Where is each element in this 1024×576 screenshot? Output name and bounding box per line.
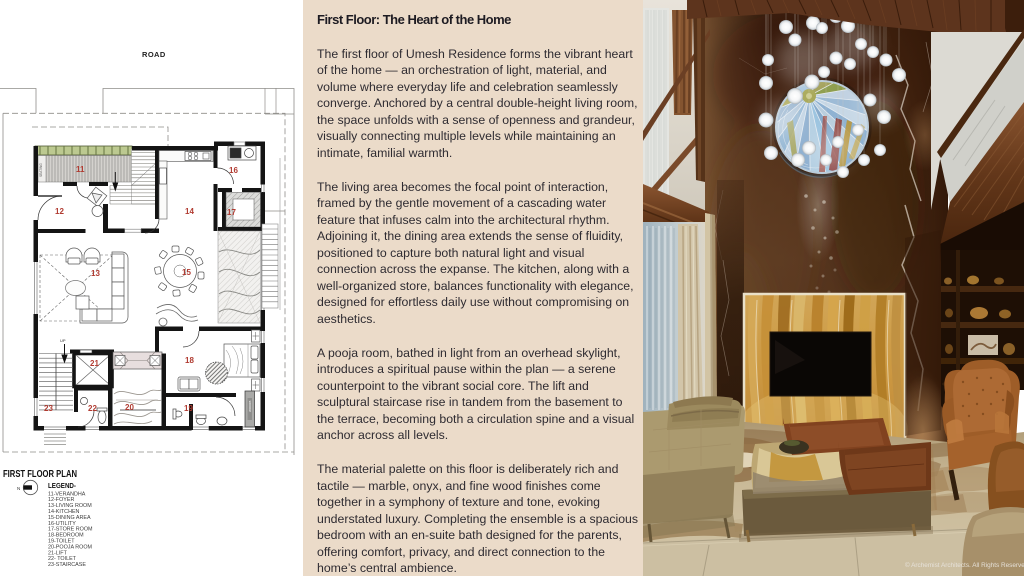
svg-text:17: 17 [227, 208, 236, 217]
svg-text:20: 20 [125, 403, 134, 412]
svg-text:LEGEND-: LEGEND- [48, 481, 76, 490]
svg-text:22: 22 [88, 404, 97, 413]
svg-text:19: 19 [184, 404, 193, 413]
svg-text:FIRST FLOOR PLAN: FIRST FLOOR PLAN [3, 468, 77, 480]
svg-text:18: 18 [185, 356, 194, 365]
svg-text:21: 21 [90, 359, 99, 368]
svg-text:14: 14 [185, 207, 194, 216]
svg-text:SEATING: SEATING [39, 163, 43, 177]
svg-text:13: 13 [91, 269, 100, 278]
svg-text:23-STAIRCASE: 23-STAIRCASE [48, 562, 86, 568]
svg-text:N: N [17, 486, 20, 491]
svg-text:11: 11 [76, 165, 85, 174]
svg-text:UP: UP [60, 338, 66, 343]
svg-text:ROAD: ROAD [142, 50, 166, 59]
svg-text:WRDRB: WRDRB [248, 401, 252, 412]
svg-text:23: 23 [44, 404, 53, 413]
svg-text:16: 16 [229, 166, 238, 175]
svg-text:12: 12 [55, 207, 64, 216]
svg-text:© Archemist Architects. All Ri: © Archemist Architects. All Rights Reser… [905, 561, 1024, 569]
svg-text:15: 15 [182, 268, 191, 277]
